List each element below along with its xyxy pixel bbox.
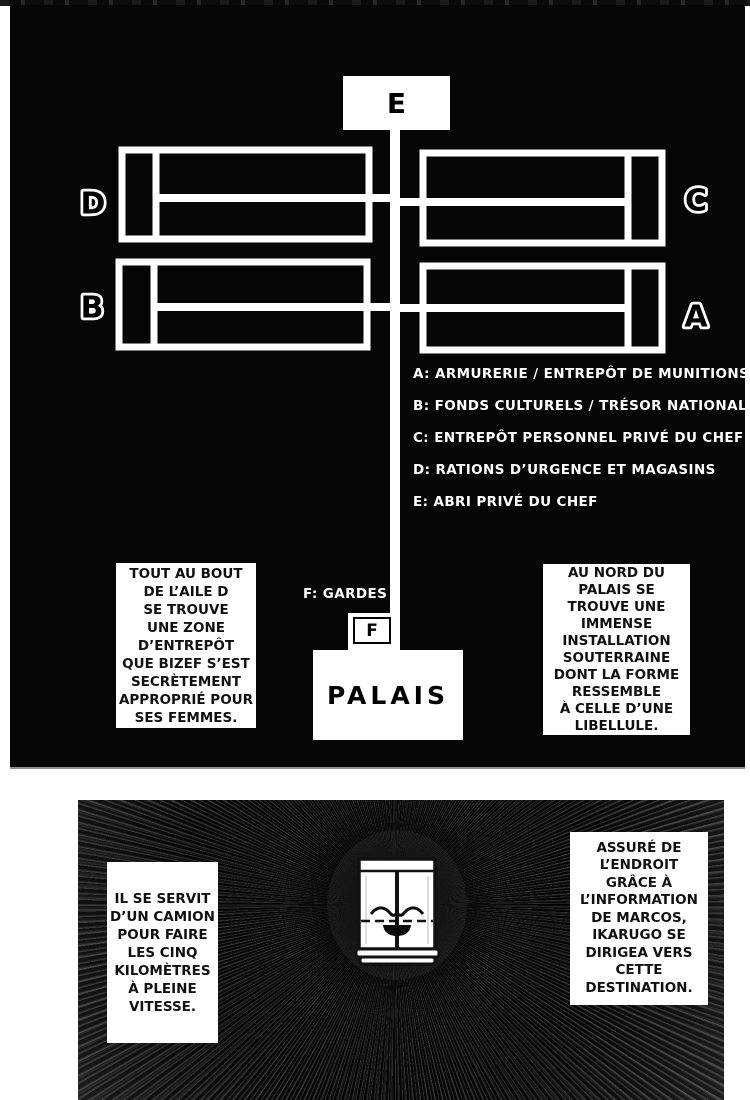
legend-item-c: C: ENTREPÔT PERSONNEL PRIVÉ DU CHEF bbox=[413, 431, 749, 445]
palace-label: PALAIS bbox=[327, 681, 449, 710]
legend-item-a: A: ARMURERIE / ENTREPÔT DE MUNITIONS bbox=[413, 367, 749, 381]
caption-text: ASSURÉ DE L’ENDROIT GRÂCE À L’INFORMATIO… bbox=[580, 840, 698, 998]
diagram-legend: A: ARMURERIE / ENTREPÔT DE MUNITIONS B: … bbox=[413, 367, 749, 527]
palace-box: PALAIS bbox=[313, 650, 463, 740]
caption-box-truck-note: IL SE SERVIT D’UN CAMION POUR FAIRE LES … bbox=[107, 862, 218, 1043]
shelter-e-box: E bbox=[343, 76, 450, 130]
legend-item-f-guards: F: GARDES bbox=[303, 586, 387, 602]
manga-page: D B C A E F PALAIS A: ARMURER bbox=[0, 0, 750, 1100]
caption-text: IL SE SERVIT D’UN CAMION POUR FAIRE LES … bbox=[110, 890, 215, 1016]
caption-text: AU NORD DU PALAIS SE TROUVE UNE IMMENSE … bbox=[554, 565, 679, 735]
legend-item-b: B: FONDS CULTURELS / TRÉSOR NATIONAL bbox=[413, 399, 749, 413]
caption-text: TOUT AU BOUT DE L’AILE D SE TROUVE UNE Z… bbox=[119, 565, 253, 727]
shelter-e-label: E bbox=[387, 87, 406, 120]
guards-f-box: F bbox=[353, 617, 391, 644]
caption-box-wing-d-note: TOUT AU BOUT DE L’AILE D SE TROUVE UNE Z… bbox=[116, 563, 256, 728]
caption-box-ikarugo-note: ASSURÉ DE L’ENDROIT GRÂCE À L’INFORMATIO… bbox=[570, 832, 708, 1005]
guards-f-label: F bbox=[366, 621, 378, 641]
caption-box-installation-note: AU NORD DU PALAIS SE TROUVE UNE IMMENSE … bbox=[543, 564, 690, 735]
legend-item-e: E: ABRI PRIVÉ DU CHEF bbox=[413, 495, 749, 509]
legend-item-d: D: RATIONS D’URGENCE ET MAGASINS bbox=[413, 463, 749, 477]
